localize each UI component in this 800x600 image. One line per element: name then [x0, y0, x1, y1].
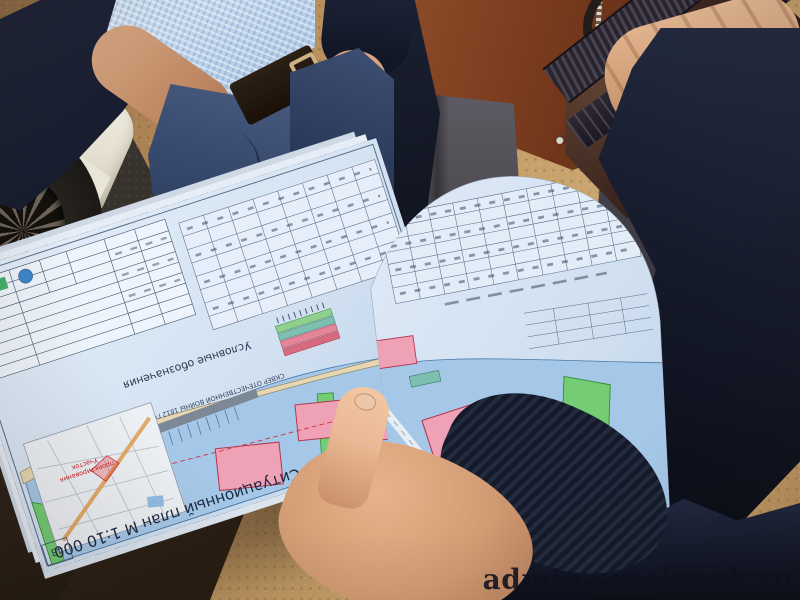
- pond: [147, 495, 164, 508]
- fingernail: [353, 391, 378, 413]
- photo-scene: Условные обозначения: [0, 0, 800, 600]
- building-pink: [373, 336, 417, 369]
- watermark-text: admin-smolensk.ru: [483, 563, 794, 596]
